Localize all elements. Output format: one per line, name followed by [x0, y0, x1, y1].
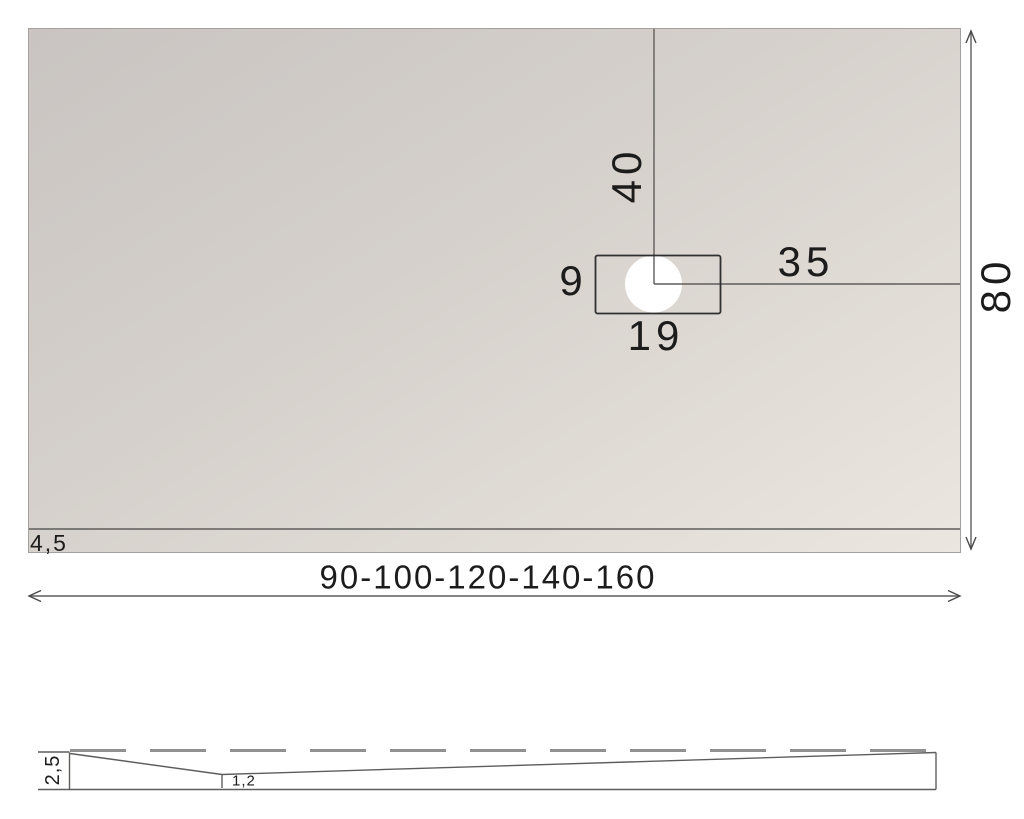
dimension-label-tray-depth: 80 [975, 257, 1017, 314]
dimension-label-drain-offset-top: 40 [606, 147, 648, 204]
dimension-label-tray-widths: 90-100-120-140-160 [320, 561, 657, 594]
width-arrow-right-icon [948, 591, 960, 602]
dimension-label-profile-min-thickness: 1,2 [232, 774, 256, 789]
dimension-label-profile-edge-height: 2,5 [43, 755, 63, 786]
width-arrow-left-icon [29, 591, 41, 602]
dimension-label-drain-box-width: 19 [628, 315, 685, 357]
depth-arrow-down-icon [966, 537, 976, 549]
tray-top-view-surface [28, 28, 961, 553]
dimension-label-edge-thickness: 4,5 [30, 532, 68, 555]
depth-arrow-up-icon [966, 31, 976, 43]
shower-tray-dimension-diagram: 40 9 35 19 80 4,5 90-100-120-140-160 2,5… [0, 0, 1024, 819]
dimension-label-drain-offset-right: 35 [778, 241, 835, 283]
profile-sloped-surface-line [70, 753, 936, 775]
dimension-label-drain-box-height: 9 [559, 260, 582, 302]
